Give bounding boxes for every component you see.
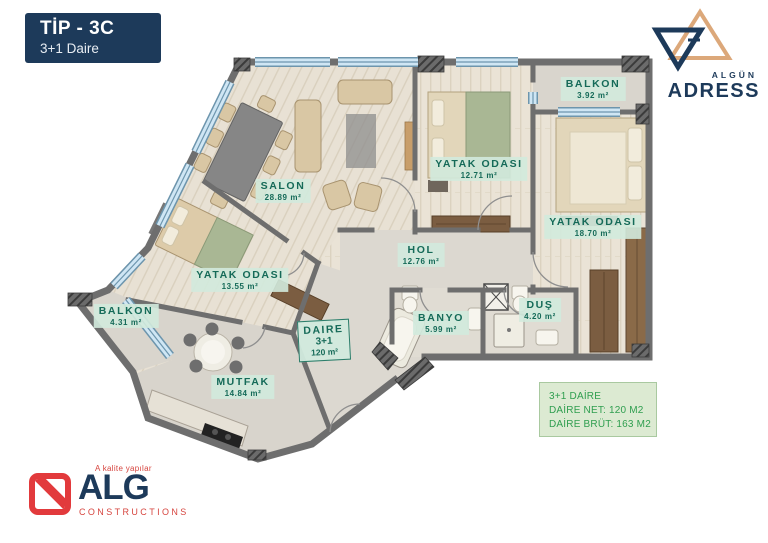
alg-logo-slash xyxy=(33,473,71,514)
unit-tag: DAIRE 3+1 120 m² xyxy=(297,319,351,363)
unit-info-box: 3+1 DAİRE DAİRE NET: 120 M2 DAİRE BRÜT: … xyxy=(539,382,657,437)
room-label-balcony2: BALKON 4.31 m² xyxy=(94,304,159,328)
alg-constructions-logo: A kalite yapılar ALG CONSTRUCTIONS xyxy=(28,460,178,535)
info-unit-type: 3+1 DAİRE xyxy=(549,390,656,404)
info-gross-area: DAİRE BRÜT: 163 M2 xyxy=(549,418,656,432)
alg-name: ALG xyxy=(78,468,149,508)
room-area: 5.99 m² xyxy=(418,324,464,334)
room-name: YATAK ODASI xyxy=(435,159,522,171)
brand-name-small: ALGÜN xyxy=(712,70,757,80)
room-name: HOL xyxy=(403,245,440,257)
room-label-shower: DUŞ 4.20 m² xyxy=(519,298,561,322)
room-area: 3.92 m² xyxy=(566,90,621,100)
room-label-salon: SALON 28.89 m² xyxy=(256,179,311,203)
plan-subtitle: 3+1 Daire xyxy=(40,41,161,56)
alg-logo-icon xyxy=(29,473,71,515)
floorplan-page: SALON 28.89 m² YATAK ODASI 12.71 m² BALK… xyxy=(0,0,768,543)
room-label-hall: HOL 12.76 m² xyxy=(398,243,445,267)
room-name: MUTFAK xyxy=(216,377,269,389)
room-area: 28.89 m² xyxy=(261,192,306,202)
room-area: 4.31 m² xyxy=(99,317,154,327)
alg-subtitle: CONSTRUCTIONS xyxy=(79,507,189,517)
room-name: YATAK ODASI xyxy=(549,217,636,229)
brand-name-large: ADRESS xyxy=(668,80,760,103)
room-label-balcony1: BALKON 3.92 m² xyxy=(561,77,626,101)
room-label-bedroom1: YATAK ODASI 12.71 m² xyxy=(430,157,527,181)
algun-adress-logo-mark xyxy=(648,8,760,78)
room-name: BANYO xyxy=(418,313,464,325)
room-name: SALON xyxy=(261,181,306,193)
room-area: 18.70 m² xyxy=(549,228,636,238)
room-label-kitchen: MUTFAK 14.84 m² xyxy=(211,375,274,399)
room-name: BALKON xyxy=(99,306,154,318)
info-net-area: DAİRE NET: 120 M2 xyxy=(549,404,656,418)
plan-type-title: TİP - 3C xyxy=(40,19,161,40)
room-label-bathroom: BANYO 5.99 m² xyxy=(413,311,469,335)
room-name: YATAK ODASI xyxy=(196,270,283,282)
algun-adress-logo: ALGÜN ADRESS xyxy=(648,8,760,108)
plan-title-box: TİP - 3C 3+1 Daire xyxy=(25,13,161,63)
room-area: 12.71 m² xyxy=(435,170,522,180)
unit-tag-line3: 120 m² xyxy=(301,346,347,358)
room-name: DUŞ xyxy=(524,300,556,312)
room-label-bedroom3: YATAK ODASI 13.55 m² xyxy=(191,268,288,292)
room-area: 13.55 m² xyxy=(196,281,283,291)
room-label-bedroom2: YATAK ODASI 18.70 m² xyxy=(544,215,641,239)
room-area: 4.20 m² xyxy=(524,311,556,321)
room-name: BALKON xyxy=(566,79,621,91)
room-area: 14.84 m² xyxy=(216,388,269,398)
room-area: 12.76 m² xyxy=(403,256,440,266)
